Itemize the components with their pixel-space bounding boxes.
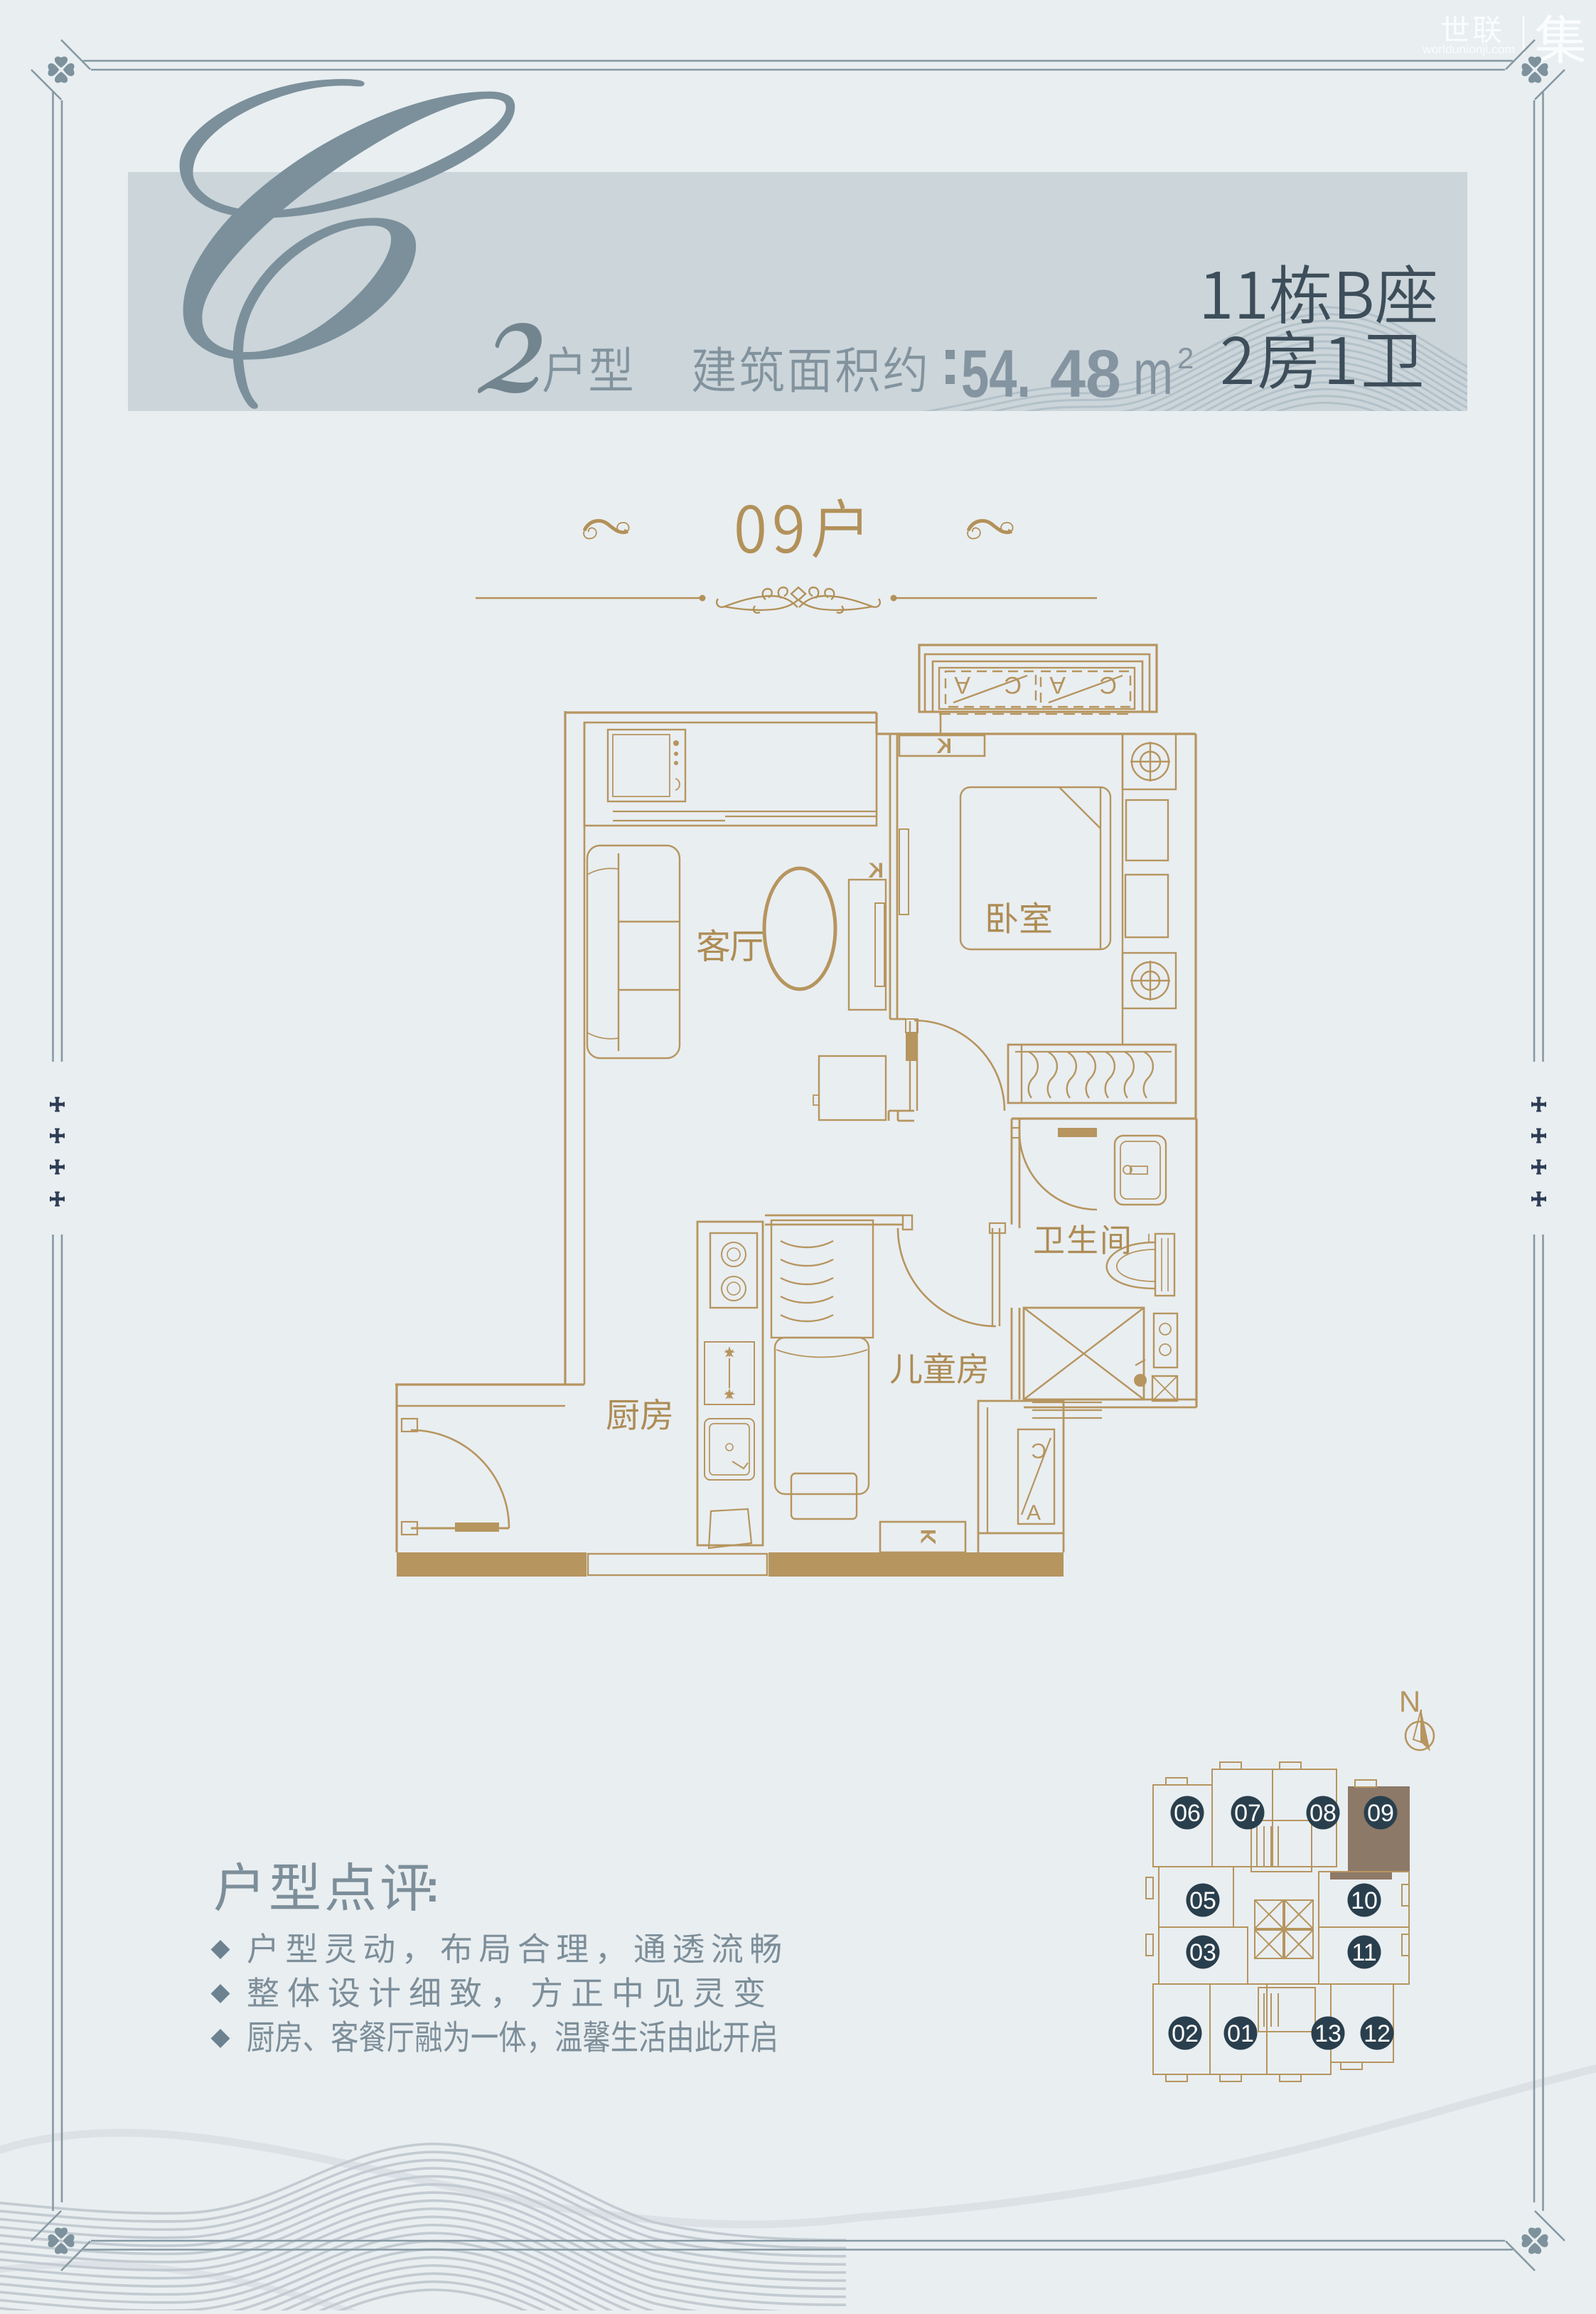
svg-text:K: K bbox=[868, 859, 884, 883]
svg-text:54.: 54. bbox=[961, 336, 1031, 412]
svg-text:A: A bbox=[1049, 671, 1066, 698]
svg-text:10: 10 bbox=[1351, 1887, 1378, 1914]
svg-text:09: 09 bbox=[1367, 1800, 1394, 1827]
svg-text:worldunionji.com: worldunionji.com bbox=[1422, 43, 1515, 56]
svg-text:A: A bbox=[954, 671, 970, 698]
svg-text:07: 07 bbox=[1234, 1800, 1261, 1827]
svg-text:11: 11 bbox=[1351, 1939, 1376, 1966]
svg-text:48: 48 bbox=[1050, 336, 1121, 412]
svg-text:08: 08 bbox=[1310, 1800, 1337, 1827]
svg-text:C: C bbox=[1004, 671, 1022, 698]
svg-text:A: A bbox=[1027, 1501, 1041, 1525]
svg-text:01: 01 bbox=[1227, 2020, 1254, 2047]
svg-text:K: K bbox=[917, 1529, 941, 1545]
svg-text:C: C bbox=[1099, 671, 1117, 698]
svg-text:N: N bbox=[1399, 1685, 1420, 1718]
svg-text:K: K bbox=[936, 735, 952, 758]
svg-text:02: 02 bbox=[1172, 2020, 1199, 2047]
svg-text:2: 2 bbox=[1177, 341, 1194, 375]
svg-text:13: 13 bbox=[1314, 2020, 1341, 2047]
svg-text::: : bbox=[425, 1862, 440, 1912]
svg-text:05: 05 bbox=[1189, 1887, 1216, 1914]
svg-text:06: 06 bbox=[1174, 1800, 1201, 1827]
svg-text:C: C bbox=[1031, 1439, 1046, 1462]
svg-text:12: 12 bbox=[1364, 2020, 1391, 2047]
svg-text:m: m bbox=[1133, 337, 1173, 407]
svg-text:03: 03 bbox=[1189, 1939, 1216, 1966]
